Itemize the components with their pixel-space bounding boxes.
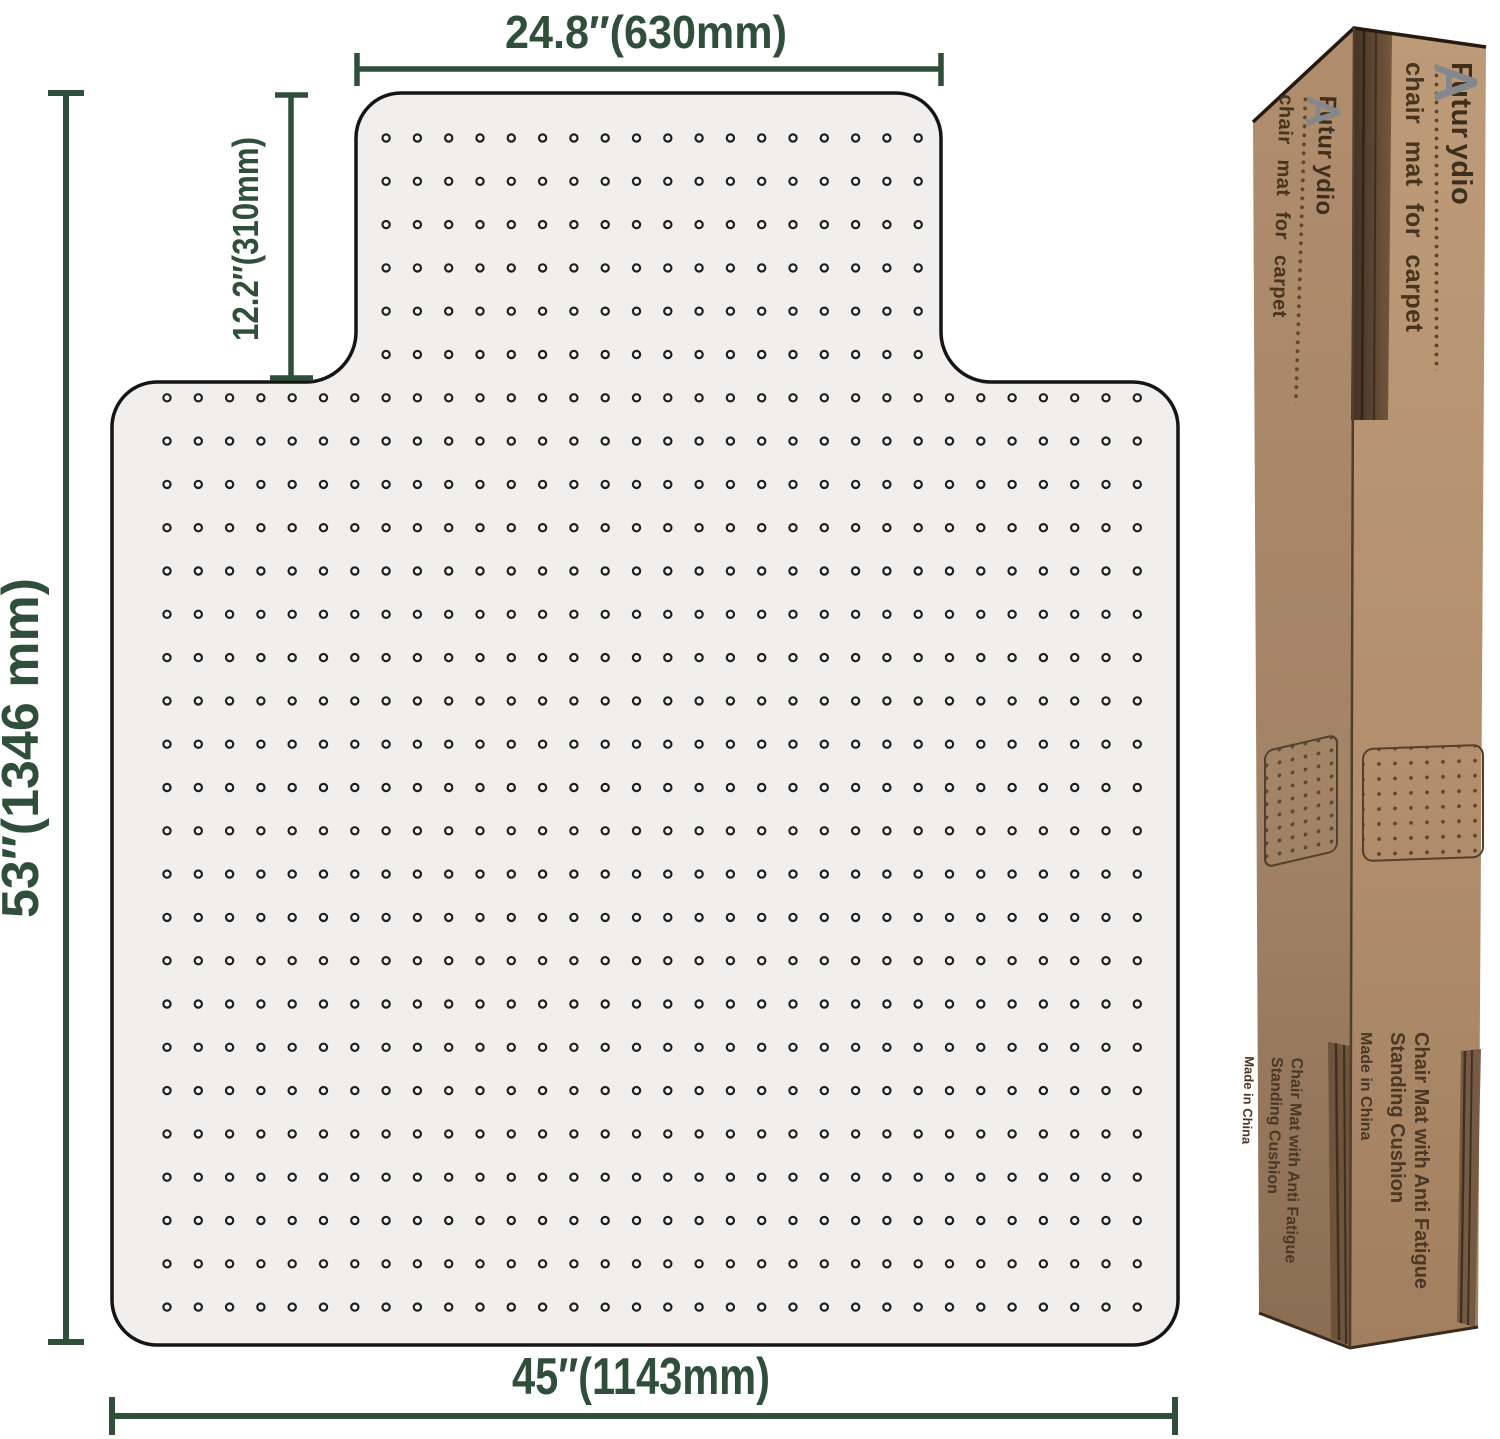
box-right-bottom-print: Chair Mat with Anti Fatigue Standing Cus… xyxy=(1355,1032,1433,1324)
aydio-a-logo-icon xyxy=(1435,62,1477,102)
mat-texture-patch xyxy=(1264,733,1338,868)
feature-line-2: Standing Cushion xyxy=(1384,1032,1408,1324)
brand-lockup: Futur ydio xyxy=(1444,62,1477,384)
brand-suffix: ydio xyxy=(1444,144,1477,206)
product-dimension-image: 24.8″(630mm) 12.2″(310mm) 53″(1346 mm) 4… xyxy=(0,0,1500,1439)
origin-line: Made in China xyxy=(1356,1032,1374,1324)
box-corner-band-bottom xyxy=(1328,1042,1350,1345)
mat-texture-patch xyxy=(1362,744,1484,862)
aydio-a-logo-icon xyxy=(1306,95,1341,128)
box-left-top-print: Futur ydio chair mat for carpet xyxy=(1253,94,1341,418)
box-tagline: chair mat for carpet xyxy=(1264,94,1297,417)
brand-suffix: ydio xyxy=(1309,164,1339,216)
box-right-top-print: Futur ydio chair mat for carpet xyxy=(1383,62,1477,384)
feature-line-1: Chair Mat with Anti Fatigue xyxy=(1409,1032,1433,1324)
box-left-bottom-print: Chair Mat with Anti Fatigue Standing Cus… xyxy=(1238,1056,1306,1324)
dotted-divider xyxy=(1434,62,1439,371)
box-tagline: chair mat for carpet xyxy=(1399,62,1428,384)
